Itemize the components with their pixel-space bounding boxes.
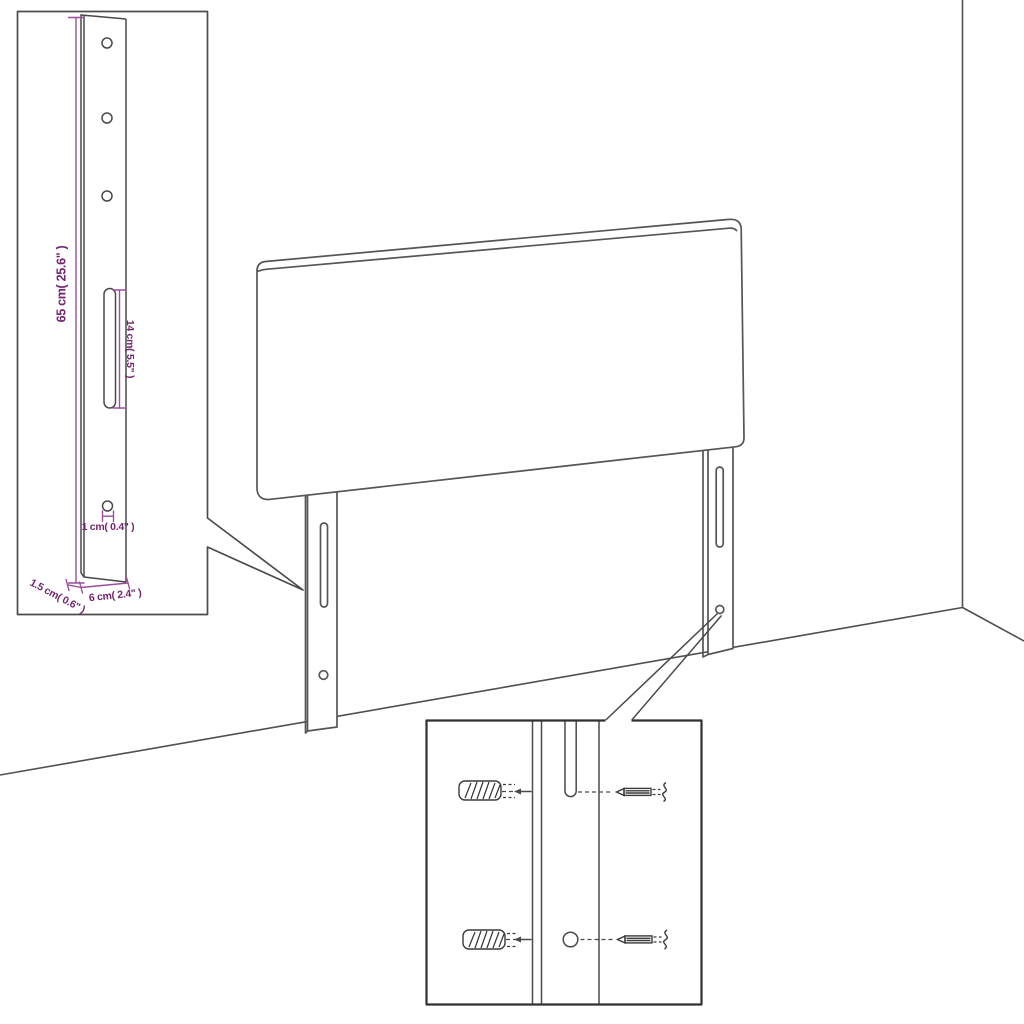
- dimension-slot-label: 14 cm( 5.5" ): [124, 320, 136, 378]
- callout-line-right: [632, 616, 722, 721]
- headboard-left-leg: [306, 486, 338, 733]
- floor-line-right: [963, 608, 1024, 642]
- detail-leg-hole-2: [102, 113, 112, 123]
- assembly-diagram: 65 cm( 25.6" ) 14 cm( 5.5" ) 1 cm( 0.4" …: [0, 0, 1024, 1024]
- left-leg-hole: [319, 671, 328, 680]
- headboard: [257, 219, 744, 733]
- detail-leg-hole-1: [102, 38, 112, 48]
- right-leg-hole: [716, 606, 724, 614]
- headboard-panel: [257, 219, 744, 499]
- headboard-right-leg: [703, 445, 733, 657]
- dimension-hole-label: 1 cm( 0.4" ): [82, 521, 135, 533]
- dimension-height-label: 65 cm( 25.6" ): [55, 245, 69, 322]
- strip-hole: [563, 932, 578, 947]
- detail-leg-hole-3: [102, 191, 112, 201]
- mounting-inset-box: [427, 721, 702, 1005]
- detail-leg-slot: [104, 289, 116, 409]
- detail-leg-bottom-hole: [103, 501, 113, 511]
- left-leg-slot: [321, 523, 328, 607]
- right-leg-slot: [716, 467, 723, 547]
- mounting-inset: [427, 614, 722, 1005]
